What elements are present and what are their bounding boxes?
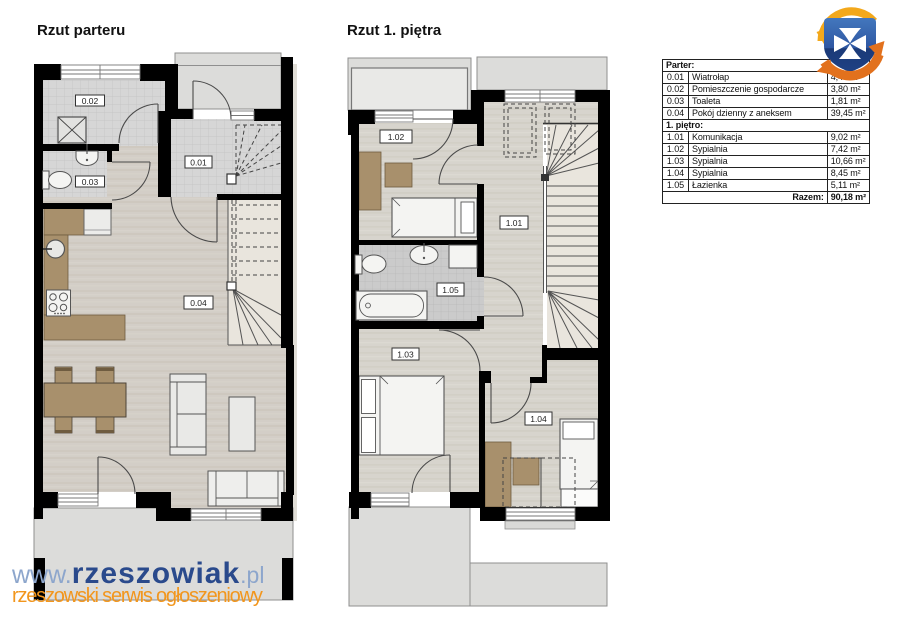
svg-text:1.02: 1.02	[388, 132, 405, 142]
svg-text:1.05: 1.05	[442, 285, 459, 295]
svg-text:1.01: 1.01	[506, 218, 523, 228]
svg-text:1.03: 1.03	[397, 350, 414, 360]
svg-text:1.04: 1.04	[530, 414, 547, 424]
svg-text:0.02: 0.02	[82, 96, 99, 106]
svg-text:0.03: 0.03	[82, 177, 99, 187]
svg-text:0.04: 0.04	[190, 298, 207, 308]
svg-text:0.01: 0.01	[190, 158, 207, 168]
